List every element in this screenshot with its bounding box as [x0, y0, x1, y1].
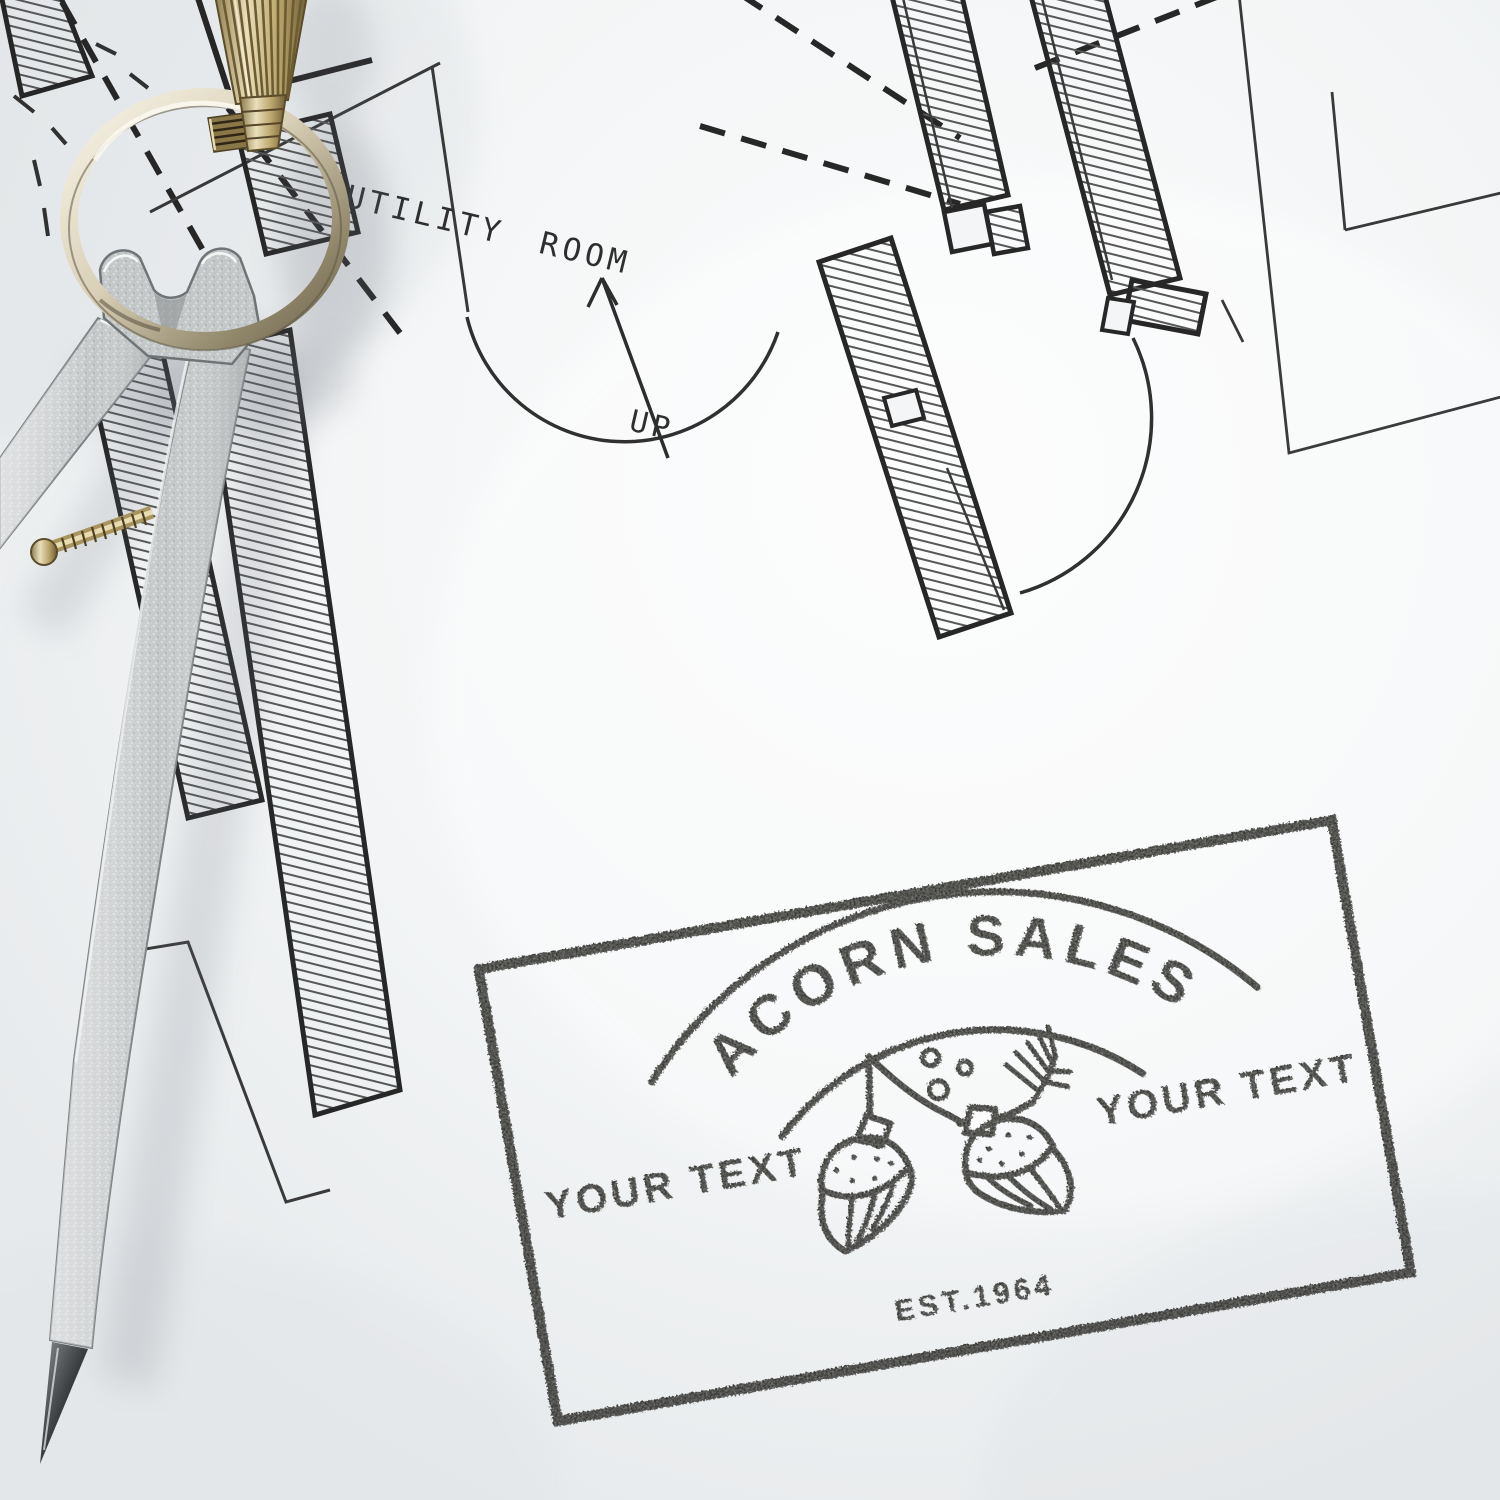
scene-canvas: UTILITY ROOM UP ACORN SALES — [0, 0, 1500, 1500]
screw-nut — [31, 539, 57, 565]
photo-of-blueprint-with-compass-and-stamp: UTILITY ROOM UP ACORN SALES — [0, 0, 1500, 1500]
door-jamb — [944, 204, 992, 252]
door-jamb — [1102, 298, 1134, 334]
door-jamb — [884, 390, 924, 426]
